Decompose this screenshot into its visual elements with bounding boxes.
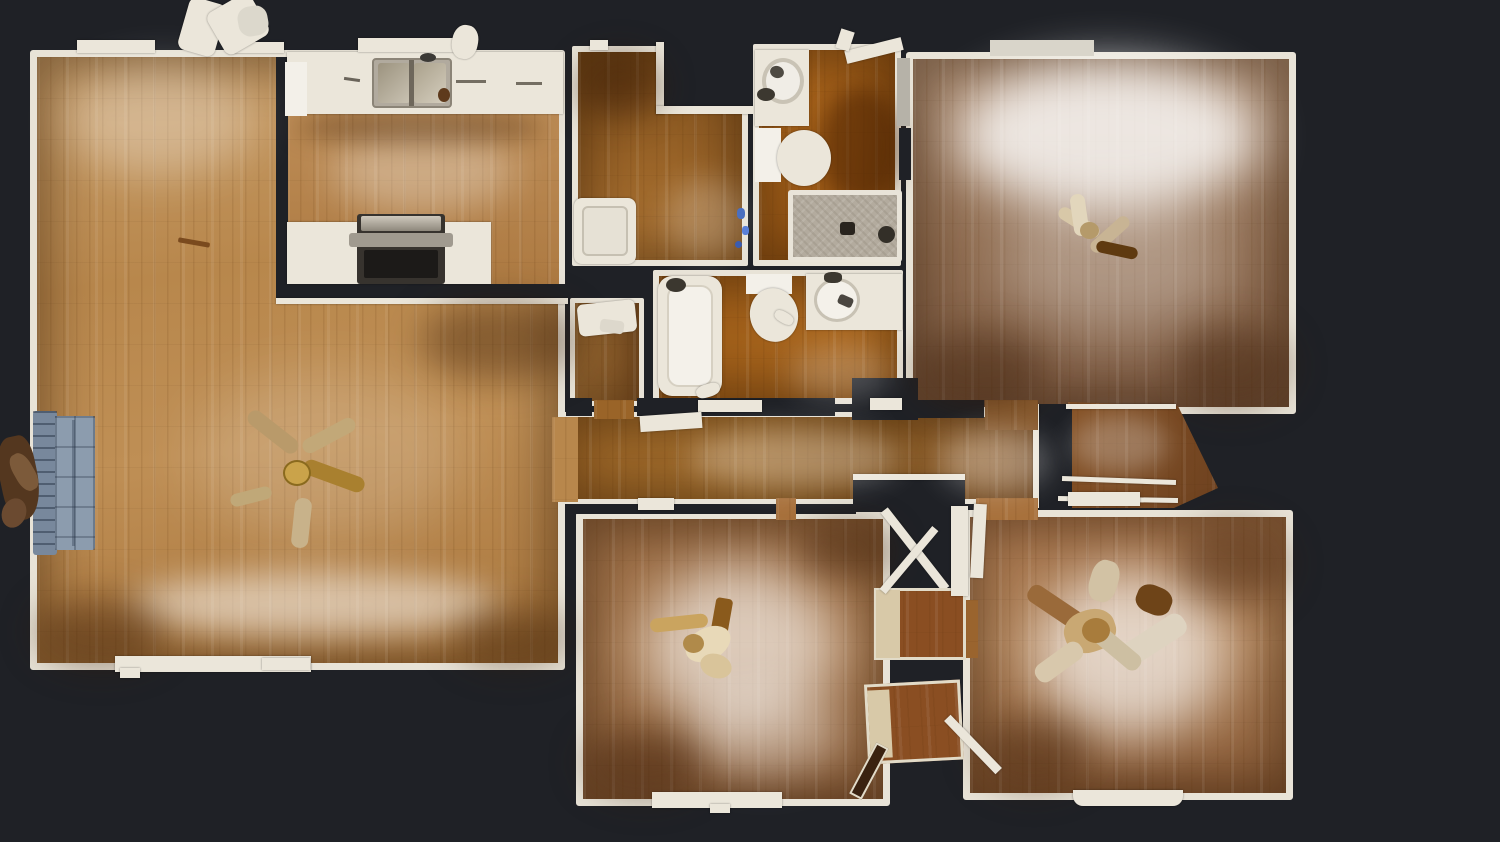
glow-bedright-mid (1000, 185, 1230, 335)
toilet-bowl-top-bath (777, 130, 831, 186)
shadow-bathtop (820, 88, 902, 204)
closet-tab-white-1 (951, 506, 968, 596)
closet-block-cap-1 (876, 590, 900, 658)
glow-living-band (130, 572, 500, 636)
floor-fill-bedmid-door (776, 498, 796, 520)
kitchen-faucet (420, 53, 436, 62)
kitchen-sink-speck (438, 88, 450, 102)
faucet-master (824, 272, 842, 283)
fan-bedright-hub (1080, 222, 1099, 239)
bathtub-faucet (666, 278, 686, 292)
wall-closet-void-cover (853, 478, 965, 510)
blue-speck-1 (737, 208, 745, 219)
glow-halltop (666, 178, 746, 258)
threshold-bedmid-top (638, 498, 674, 510)
shadow-bedright-bl (915, 330, 1045, 408)
shadow-halltop (578, 54, 662, 118)
glow-bedmid-low (690, 690, 840, 778)
shadow-bedbrt-tr (1180, 525, 1286, 603)
bathtub-master-basin (667, 285, 713, 387)
kitchen-sink-divider (409, 60, 414, 106)
shelf-strip-bedright (990, 40, 1094, 56)
blue-speck-2 (742, 226, 749, 235)
floor-fill-closet-door (594, 400, 634, 419)
floor-fill-living-to-hall (552, 417, 578, 502)
threshold-halltop (590, 40, 608, 50)
counter-seam-3 (516, 82, 542, 85)
hallway-top-notch-wall-h (656, 106, 754, 114)
shower-drain (840, 222, 855, 235)
door-threshold-bedright (1066, 404, 1176, 409)
hallway-top-notch-mask (662, 38, 754, 110)
glow-living-mid (190, 370, 460, 540)
kitchen-sink-basin-left (378, 63, 410, 103)
glow-transition (1072, 415, 1167, 473)
couch-seat (55, 416, 95, 550)
shower-stall-inner (582, 206, 628, 256)
floorplan-canvas (0, 0, 1500, 842)
glow-bathmaster (790, 345, 890, 400)
threshold-bedbrt-bottom (1073, 790, 1183, 806)
couch-seam (72, 420, 75, 546)
threshold-bedbrt-top (1068, 492, 1140, 506)
glow-dining (66, 66, 256, 176)
wall-hall-bar-1 (566, 398, 592, 416)
glow-hall-lower (690, 428, 900, 488)
wall-hall-bar-bottom-1 (566, 504, 782, 514)
stove-handle (349, 233, 453, 247)
closet-notch-bedright (899, 128, 911, 180)
wall-hall-bar-bottom-2 (792, 504, 856, 514)
window-sill-top-1 (77, 40, 155, 53)
kitchen-fridge-panel (285, 62, 307, 116)
shadow-bedbrt-bl (978, 716, 1090, 788)
shadow-bedmid-bl (585, 728, 705, 796)
faucet-top-bath (757, 88, 775, 101)
shadow-living-br (455, 606, 570, 666)
floorplan-view[interactable] (0, 0, 1500, 842)
stove-steel-top (361, 216, 441, 231)
shadow-living-topright (420, 300, 580, 380)
closet-tab-bedright (897, 58, 910, 126)
blue-speck-3 (735, 241, 742, 248)
fan-bedbrt-hub (1082, 618, 1110, 643)
threshold-bedmid-bottom-tab (710, 804, 730, 813)
shadow-bedright-br (1175, 325, 1290, 407)
threshold-living-bottom-tab (120, 668, 140, 678)
stove-oven-glass (364, 250, 438, 278)
counter-seam-2 (456, 80, 486, 83)
shower-speck (878, 226, 895, 243)
shadow-bedmid-tr (800, 522, 895, 580)
threshold-living-bottom-2 (262, 658, 310, 670)
threshold-master-door (698, 400, 762, 412)
threshold-master-right (870, 398, 902, 410)
window-sill-kitchen (358, 38, 464, 52)
glow-hall-lower-r (940, 430, 1050, 492)
fan-living-hub (283, 460, 311, 486)
fan-bedmid-hub (683, 634, 704, 653)
shadow-kitchen (295, 110, 545, 144)
